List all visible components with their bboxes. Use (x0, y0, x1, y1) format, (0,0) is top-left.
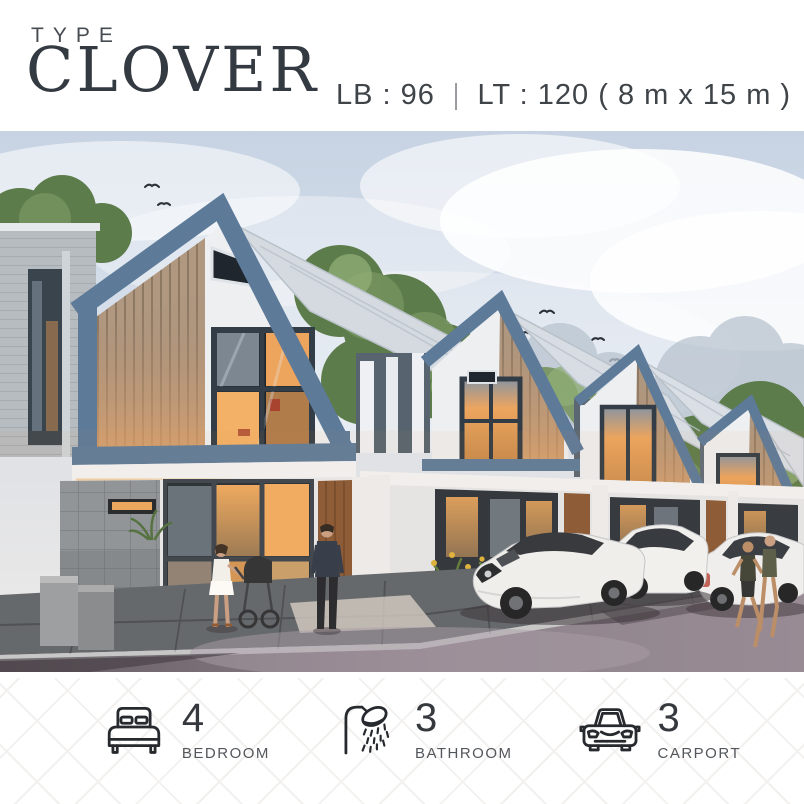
spec-lt: LT : 120 ( 8 m x 15 m ) (477, 79, 791, 112)
bedroom-label: BEDROOM (182, 745, 270, 762)
hero-render (0, 131, 804, 672)
spec-lb: LB : 96 (336, 79, 435, 112)
feature-bathroom: 3 BATHROOM (334, 696, 513, 762)
townhouse-scene (0, 131, 804, 672)
features-row: 4 BEDROOM 3 BATHROOM (0, 672, 804, 762)
bed-icon (101, 696, 167, 758)
page-title: CLOVER (26, 36, 319, 104)
header: TYPE CLOVER LB : 96 | LT : 120 ( 8 m x 1… (0, 0, 804, 131)
carport-label: CARPORT (658, 745, 742, 762)
feature-carport: 3 CARPORT (577, 696, 742, 762)
bathroom-count: 3 (415, 698, 513, 738)
spec-line: LB : 96 | LT : 120 ( 8 m x 15 m ) (336, 79, 791, 112)
carport-count: 3 (658, 698, 742, 738)
bedroom-count: 4 (182, 698, 270, 738)
spec-divider: | (454, 79, 459, 112)
shower-icon (334, 696, 400, 758)
car-icon (577, 696, 643, 758)
bathroom-label: BATHROOM (415, 745, 513, 762)
feature-bedroom: 4 BEDROOM (101, 696, 270, 762)
dusk-overlay (0, 431, 804, 672)
feature-bar: 4 BEDROOM 3 BATHROOM (0, 672, 804, 804)
